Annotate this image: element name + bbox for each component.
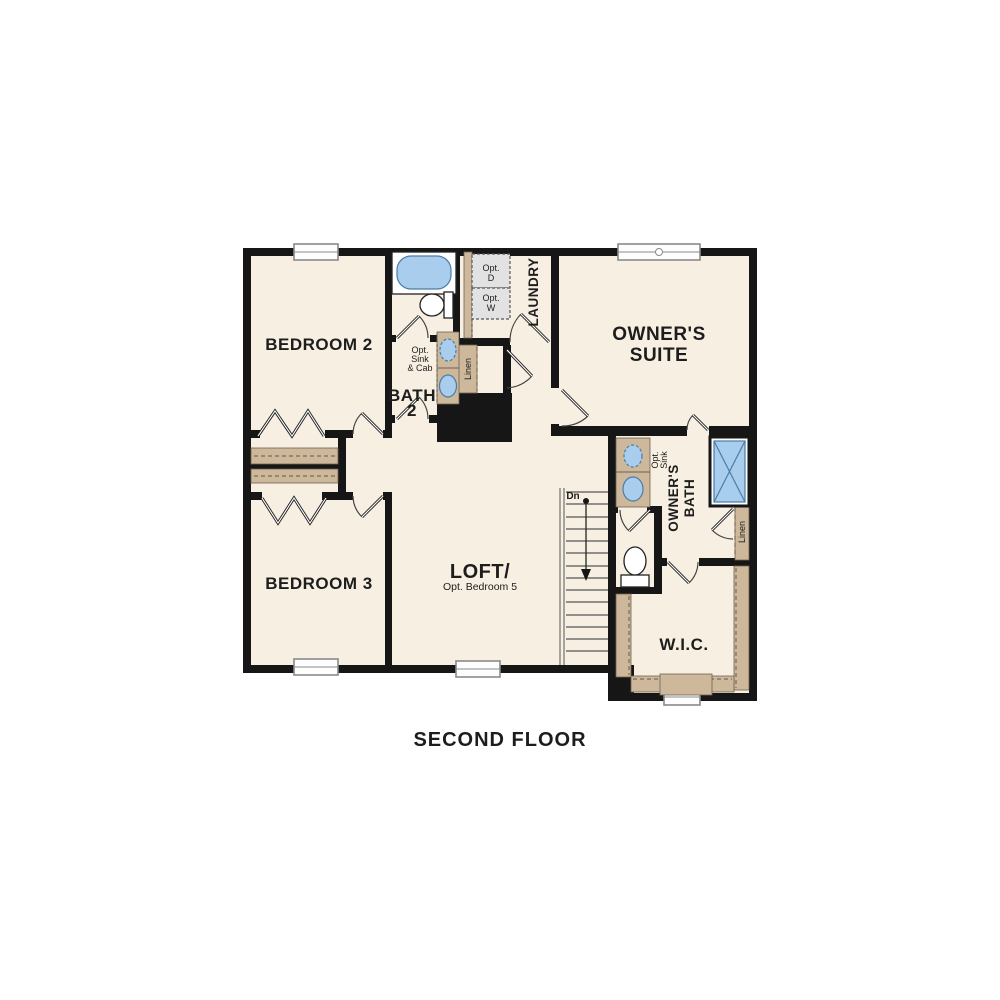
sink-icon <box>440 375 457 397</box>
window-icon <box>294 659 338 675</box>
toilet-icon <box>420 292 453 318</box>
optional-sink-icon <box>624 445 642 467</box>
loft-label: LOFT/ <box>450 561 510 583</box>
bedroom3-label: BEDROOM 3 <box>265 574 372 593</box>
bath2-vanity <box>437 332 459 404</box>
bedroom2-label: BEDROOM 2 <box>265 335 372 354</box>
bathtub-icon <box>392 252 456 294</box>
loft-sublabel: Opt. Bedroom 5 <box>443 581 517 593</box>
laundry-label: LAUNDRY <box>526 258 541 327</box>
wic-label: W.I.C. <box>659 635 708 654</box>
linen-bath-label: Linen <box>737 521 747 543</box>
bath2-label-2: 2 <box>407 401 417 420</box>
window-icon <box>618 244 700 260</box>
owners-bath-label-2: BATH <box>682 479 697 518</box>
floor-plan-page: Dn <box>0 0 1000 1000</box>
shower-icon <box>710 437 749 506</box>
stairs-down-label: Dn <box>566 491 579 502</box>
opt-washer-label-1: Opt. <box>482 293 499 303</box>
window-icon <box>294 244 338 260</box>
opt-dryer-label-1: Opt. <box>482 263 499 273</box>
owners-suite-label-1: OWNER'S <box>612 324 706 345</box>
window-icon <box>456 661 500 677</box>
linen-hall-label: Linen <box>463 358 473 380</box>
opt-washer-label-2: W <box>487 303 496 313</box>
opt-sink-label-2: Sink <box>659 451 669 469</box>
sink-icon <box>623 477 643 501</box>
owners-suite-label-2: SUITE <box>630 345 688 366</box>
opt-sink-cab-label-3: & Cab <box>407 363 432 373</box>
laundry-shelf <box>464 252 472 338</box>
page-title: SECOND FLOOR <box>413 729 586 751</box>
floor-plan-drawing: Dn <box>0 0 1000 1000</box>
owners-bath-label-1: OWNER'S <box>666 464 681 531</box>
wic-window-seat <box>660 674 712 695</box>
owners-bath-vanity <box>616 438 650 507</box>
opt-dryer-label-2: D <box>488 273 495 283</box>
optional-sink-icon <box>440 339 456 361</box>
